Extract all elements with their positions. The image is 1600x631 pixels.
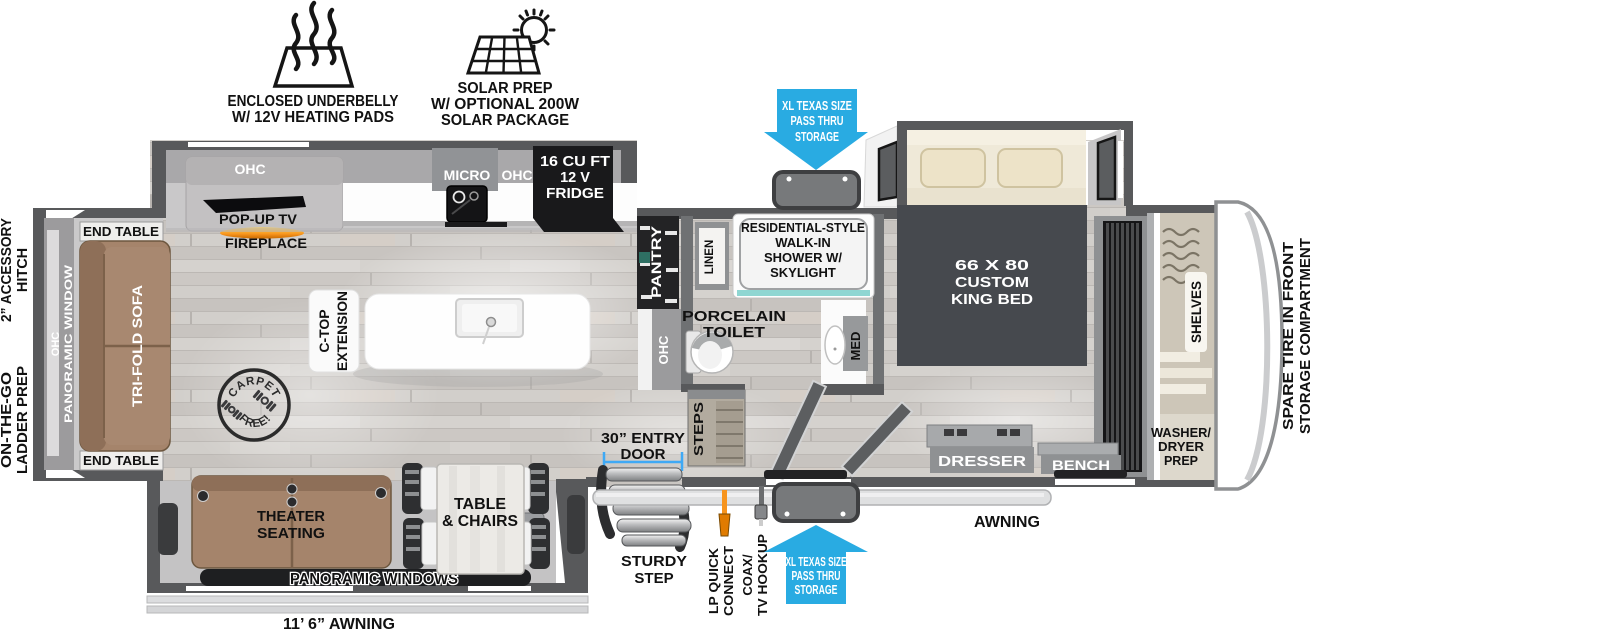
svg-text:COAX/: COAX/ <box>740 554 755 596</box>
svg-text:STEP: STEP <box>634 570 673 587</box>
svg-text:POP-UP TV: POP-UP TV <box>219 212 297 227</box>
svg-text:MED: MED <box>848 332 863 361</box>
svg-text:STURDY: STURDY <box>621 553 687 570</box>
svg-text:END TABLE: END TABLE <box>83 453 159 468</box>
svg-text:KING BED: KING BED <box>951 291 1033 308</box>
svg-text:& CHAIRS: & CHAIRS <box>442 513 518 530</box>
svg-text:WASHER/: WASHER/ <box>1151 426 1212 440</box>
svg-text:W/ 12V HEATING PADS: W/ 12V HEATING PADS <box>232 109 394 126</box>
svg-text:SOLAR PACKAGE: SOLAR PACKAGE <box>441 112 569 129</box>
svg-text:DRYER: DRYER <box>1158 440 1204 454</box>
svg-text:HITCH: HITCH <box>15 248 31 292</box>
svg-text:ON-THE-GO: ON-THE-GO <box>0 372 15 468</box>
svg-text:WALK-IN: WALK-IN <box>775 235 831 250</box>
svg-text:TABLE: TABLE <box>454 496 506 513</box>
svg-text:TOILET: TOILET <box>703 324 765 341</box>
svg-text:RESIDENTIAL-STYLE: RESIDENTIAL-STYLE <box>741 220 865 235</box>
svg-text:XL TEXAS SIZE: XL TEXAS SIZE <box>782 98 852 113</box>
svg-text:W/ OPTIONAL 200W: W/ OPTIONAL 200W <box>431 96 580 113</box>
svg-text:MICRO: MICRO <box>444 167 491 183</box>
svg-text:12 V: 12 V <box>560 170 590 186</box>
svg-text:PREP: PREP <box>1164 454 1198 468</box>
svg-text:STORAGE COMPARTMENT: STORAGE COMPARTMENT <box>1298 238 1314 434</box>
svg-text:ENCLOSED UNDERBELLY: ENCLOSED UNDERBELLY <box>228 93 399 110</box>
svg-text:FIREPLACE: FIREPLACE <box>225 236 307 251</box>
svg-text:OHC: OHC <box>501 167 532 183</box>
svg-text:66 X 80: 66 X 80 <box>955 257 1029 274</box>
svg-text:THEATER: THEATER <box>257 508 325 525</box>
svg-text:SEATING: SEATING <box>257 525 325 542</box>
svg-text:2” ACCESSORY: 2” ACCESSORY <box>0 218 15 322</box>
svg-text:11’ 6” AWNING: 11’ 6” AWNING <box>283 616 395 631</box>
svg-text:OHC: OHC <box>656 335 671 365</box>
svg-text:STORAGE: STORAGE <box>795 129 839 144</box>
svg-text:STEPS: STEPS <box>692 402 706 456</box>
svg-text:PASS THRU: PASS THRU <box>792 569 841 583</box>
svg-text:PORCELAIN: PORCELAIN <box>682 308 786 325</box>
svg-text:END TABLE: END TABLE <box>83 224 159 239</box>
svg-text:STORAGE: STORAGE <box>795 583 838 597</box>
svg-text:TRI-FOLD SOFA: TRI-FOLD SOFA <box>130 285 145 407</box>
svg-text:PANORAMIC WINDOWS: PANORAMIC WINDOWS <box>290 571 458 588</box>
svg-text:SPARE TIRE IN FRONT: SPARE TIRE IN FRONT <box>1281 242 1297 430</box>
svg-text:XL TEXAS SIZE: XL TEXAS SIZE <box>786 555 847 569</box>
svg-text:PANTRY: PANTRY <box>648 225 664 298</box>
svg-text:LINEN: LINEN <box>704 240 716 275</box>
svg-text:DRESSER: DRESSER <box>938 454 1027 470</box>
svg-text:16 CU FT: 16 CU FT <box>540 154 610 170</box>
svg-text:FRIDGE: FRIDGE <box>546 186 604 202</box>
svg-text:PANORAMIC WINDOW: PANORAMIC WINDOW <box>63 264 75 423</box>
svg-text:OHC: OHC <box>50 332 62 357</box>
svg-text:AWNING: AWNING <box>974 514 1040 531</box>
svg-text:30” ENTRY: 30” ENTRY <box>601 430 685 447</box>
svg-text:SOLAR PREP: SOLAR PREP <box>458 80 553 97</box>
svg-text:LP QUICK: LP QUICK <box>706 547 721 614</box>
svg-text:C-TOP: C-TOP <box>316 309 332 352</box>
svg-text:DOOR: DOOR <box>621 446 666 463</box>
svg-text:SHOWER W/: SHOWER W/ <box>764 250 842 265</box>
svg-text:SKYLIGHT: SKYLIGHT <box>770 265 836 280</box>
svg-text:EXTENSION: EXTENSION <box>334 291 350 371</box>
svg-text:LADDER PREP: LADDER PREP <box>15 366 31 474</box>
svg-text:CUSTOM: CUSTOM <box>955 274 1029 291</box>
svg-text:OHC: OHC <box>234 161 265 177</box>
svg-text:SHELVES: SHELVES <box>1189 281 1204 343</box>
svg-text:PASS THRU: PASS THRU <box>791 113 844 128</box>
svg-text:CONNECT: CONNECT <box>721 546 736 616</box>
svg-text:TV HOOKUP: TV HOOKUP <box>755 534 770 616</box>
